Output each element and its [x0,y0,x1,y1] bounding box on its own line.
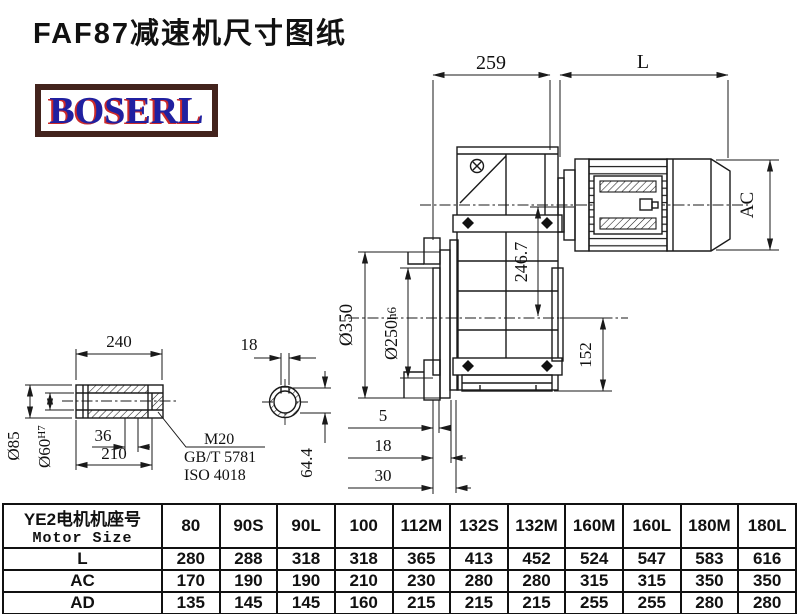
column-header: 100 [335,504,393,548]
table-cell: 365 [393,548,451,570]
dim-240-label: 240 [106,332,132,351]
row-label: AC [3,570,162,592]
table-cell: 280 [508,570,566,592]
table-cell: 547 [623,548,681,570]
column-header: 80 [162,504,220,548]
dim-d60h7-label: Ø60H7 [35,425,54,468]
dim-30-label: 30 [375,466,392,485]
column-header: 160L [623,504,681,548]
table-cell: 230 [393,570,451,592]
dim-64.4-label: 64.4 [297,448,316,478]
dim-d85-label: Ø85 [4,431,23,460]
dim-259-label: 259 [476,52,506,74]
hollow-shaft-detail [76,385,163,418]
dim-36-label: 36 [95,426,112,445]
row-label: L [3,548,162,570]
table-cell: 280 [738,592,796,614]
dim-5-label: 5 [379,406,388,425]
dim-18-keyway-label: 18 [241,335,258,354]
dim-18-flange-label: 18 [375,436,392,455]
table-cell: 452 [508,548,566,570]
table-cell: 280 [162,548,220,570]
table-cell: 135 [162,592,220,614]
table-cell: 170 [162,570,220,592]
dim-152-label: 152 [576,342,595,368]
table-cell: 145 [277,592,335,614]
table-cell: 288 [220,548,278,570]
dim-L-label: L [637,51,649,73]
dim-d350-label: Ø350 [336,304,357,346]
table-cell: 315 [623,570,681,592]
table-cell: 616 [738,548,796,570]
table-cell: 318 [335,548,393,570]
table-cell: 215 [393,592,451,614]
table-cell: 413 [450,548,508,570]
table-cell: 280 [681,592,739,614]
motor-outline [564,159,730,251]
column-header: 180M [681,504,739,548]
column-header: 112M [393,504,451,548]
table-cell: 190 [277,570,335,592]
column-header: 180L [738,504,796,548]
dim-AC-label: AC [737,192,758,218]
table-cell: 255 [623,592,681,614]
dim-d250h6-label: Ø250h6 [381,307,401,361]
header-line1: YE2电机机座号 [4,505,161,530]
motor-size-table: YE2电机机座号Motor Size8090S90L100112M132S132… [2,503,797,614]
table-cell: 524 [565,548,623,570]
gear-housing-outline [453,147,564,391]
table-cell: 145 [220,592,278,614]
table-cell: 350 [738,570,796,592]
column-header: 90S [220,504,278,548]
column-header: 160M [565,504,623,548]
row-label: AD [3,592,162,614]
table-cell: 350 [681,570,739,592]
column-header: 132M [508,504,566,548]
table-cell: 318 [277,548,335,570]
header-line2: Motor Size [4,530,161,547]
table-cell: 210 [335,570,393,592]
table-cell: 215 [508,592,566,614]
table-cell: 215 [450,592,508,614]
thread-gbt-label: GB/T 5781 [184,449,256,466]
table-cell: 160 [335,592,393,614]
thread-iso-label: ISO 4018 [184,467,246,484]
column-header: 132S [450,504,508,548]
table-cell: 315 [565,570,623,592]
output-flange-outline [404,238,458,400]
column-header: 90L [277,504,335,548]
table-cell: 280 [450,570,508,592]
motor-size-header-cell: YE2电机机座号Motor Size [3,504,162,548]
dimension-drawing: 259 L AC 246.7 Ø350 Ø250h6 152 5 18 30 2… [0,0,800,503]
drawing-sheet: FAF87减速机尺寸图纸 BOSERL [0,0,800,614]
table-cell: 583 [681,548,739,570]
shaft-cross-section [270,386,301,418]
table-cell: 190 [220,570,278,592]
dim-210-label: 210 [101,444,127,463]
thread-m20-label: M20 [204,431,234,448]
table-cell: 255 [565,592,623,614]
dim-246.7-label: 246.7 [511,242,531,283]
